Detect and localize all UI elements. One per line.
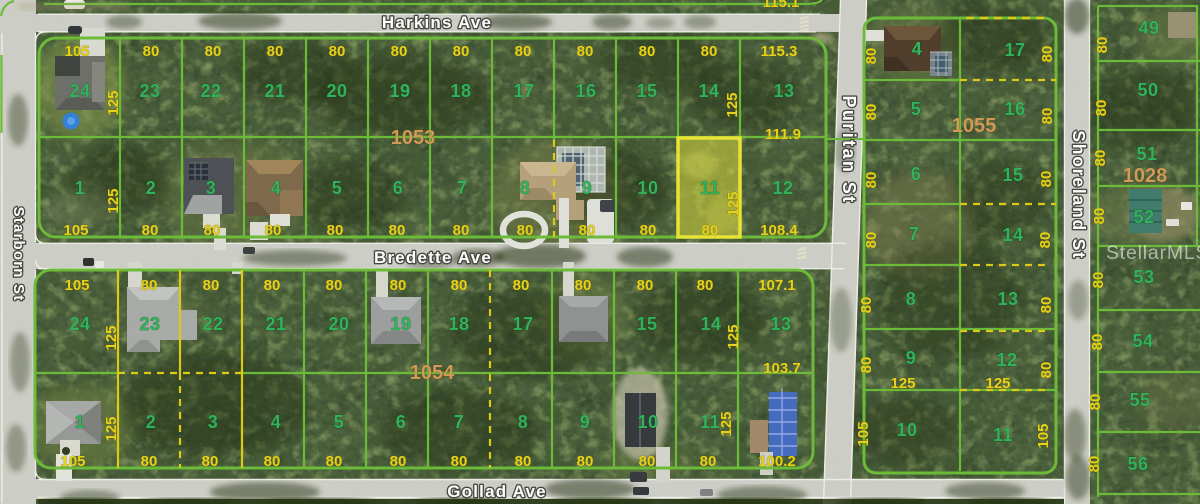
svg-text:StellarMLS: StellarMLS xyxy=(1106,242,1200,264)
